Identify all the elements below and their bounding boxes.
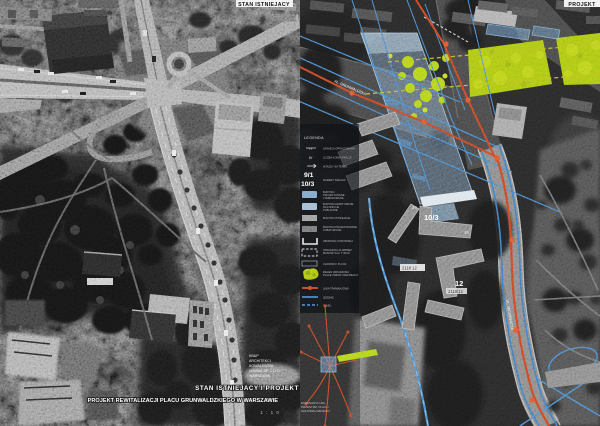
svg-text:NOWAK SP. Z O.O.: NOWAK SP. Z O.O.: [249, 369, 281, 373]
svg-text:1 : 1 0: 1 : 1 0: [260, 410, 280, 415]
svg-text:KB&P: KB&P: [249, 354, 259, 358]
svg-text:STAN ISTNIEJACY I PROJEKT: STAN ISTNIEJACY I PROJEKT: [195, 385, 299, 392]
svg-text:ARCHITEKCI: ARCHITEKCI: [249, 359, 271, 363]
svg-text:PROJEKT: PROJEKT: [568, 2, 596, 8]
svg-text:WARSZAWA: WARSZAWA: [249, 374, 270, 378]
svg-text:PROJEKT REWITALIZACJI PLACU GR: PROJEKT REWITALIZACJI PLACU GRUNWALDZKIE…: [88, 398, 279, 404]
svg-text:STAN ISTNIEJACY: STAN ISTNIEJACY: [238, 2, 290, 8]
svg-text:KOWALEWSKI: KOWALEWSKI: [249, 364, 273, 368]
